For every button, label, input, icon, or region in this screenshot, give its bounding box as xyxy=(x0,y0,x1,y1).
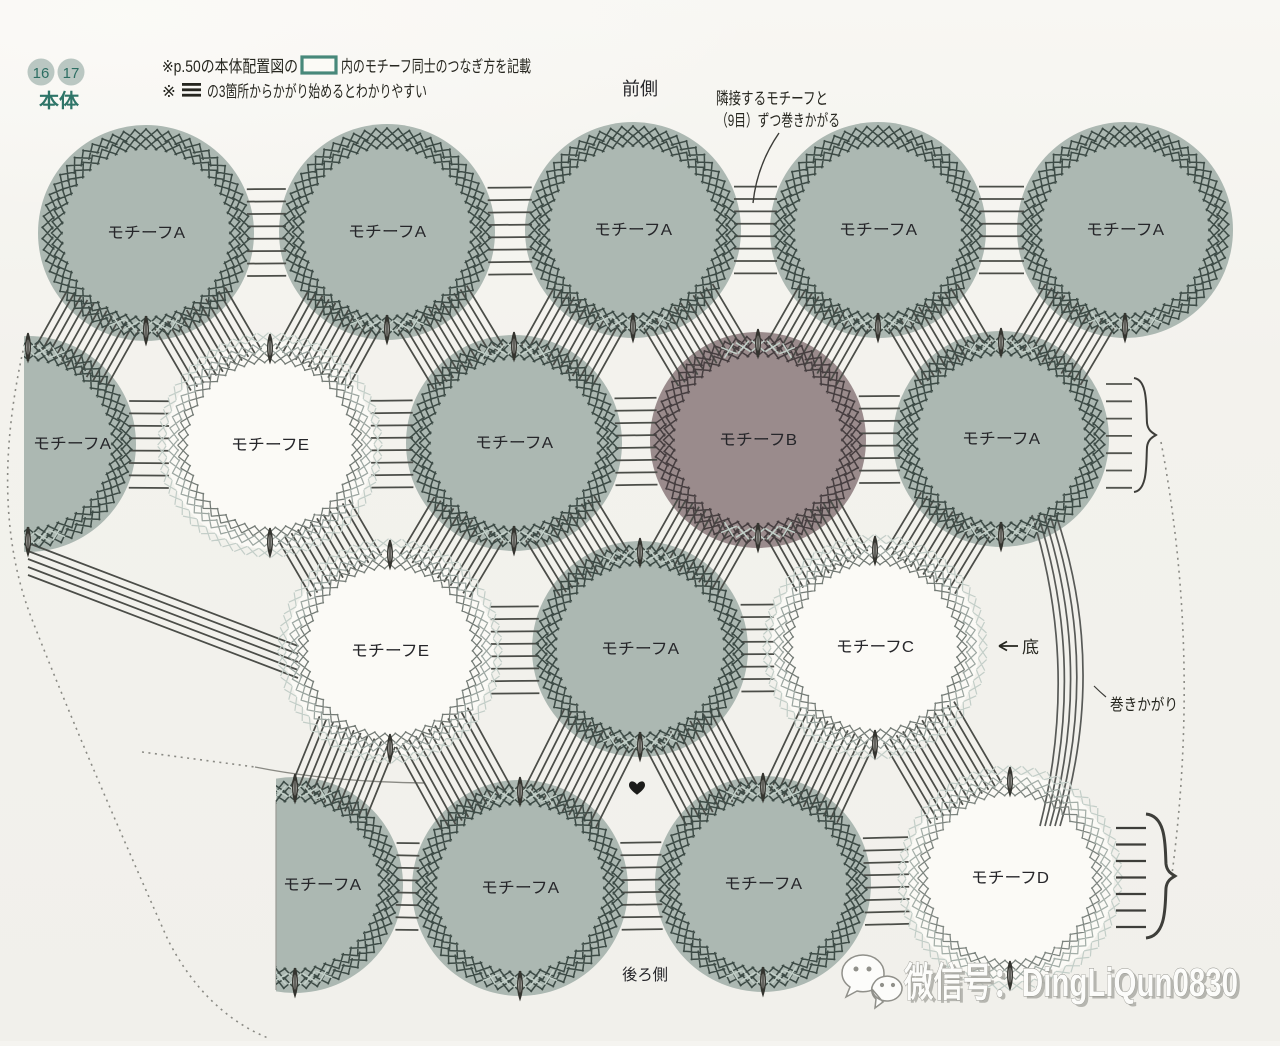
svg-text:モチーフA: モチーフA xyxy=(1086,222,1164,239)
svg-text:モチーフA: モチーフA xyxy=(283,877,361,894)
svg-text:隣接するモチーフと: 隣接するモチーフと xyxy=(716,89,828,108)
svg-text:※p.50の本体配置図の: ※p.50の本体配置図の xyxy=(162,57,298,76)
svg-text:後ろ側: 後ろ側 xyxy=(622,966,668,984)
svg-text:モチーフE: モチーフE xyxy=(351,643,429,660)
svg-text:17: 17 xyxy=(63,65,80,82)
svg-text:モチーフC: モチーフC xyxy=(836,639,914,656)
svg-text:モチーフA: モチーフA xyxy=(348,224,426,241)
svg-text:底: 底 xyxy=(1022,638,1039,657)
svg-text:モチーフA: モチーフA xyxy=(481,880,559,897)
svg-text:16: 16 xyxy=(33,65,50,82)
svg-text:モチーフA: モチーフA xyxy=(601,641,679,658)
svg-text:の3箇所からかがり始めるとわかりやすい: の3箇所からかがり始めるとわかりやすい xyxy=(207,82,427,101)
svg-text:微信号：DingLiQun0830: 微信号：DingLiQun0830 xyxy=(903,961,1238,1005)
svg-text:内のモチーフ同士のつなぎ方を記載: 内のモチーフ同士のつなぎ方を記載 xyxy=(341,57,531,76)
svg-text:前側: 前側 xyxy=(622,79,658,99)
svg-text:本体: 本体 xyxy=(39,89,80,112)
svg-text:（9目）ずつ巻きかがる: （9目）ずつ巻きかがる xyxy=(716,111,840,130)
svg-text:モチーフA: モチーフA xyxy=(962,431,1040,448)
svg-text:巻きかがり: 巻きかがり xyxy=(1110,696,1178,714)
svg-text:モチーフA: モチーフA xyxy=(33,436,111,453)
svg-text:モチーフA: モチーフA xyxy=(107,225,185,242)
svg-text:モチーフD: モチーフD xyxy=(971,870,1049,887)
svg-text:モチーフE: モチーフE xyxy=(231,437,309,454)
svg-text:モチーフA: モチーフA xyxy=(839,222,917,239)
svg-text:モチーフA: モチーフA xyxy=(475,435,553,452)
svg-text:モチーフA: モチーフA xyxy=(594,222,672,239)
svg-text:※: ※ xyxy=(162,83,176,101)
svg-text:モチーフA: モチーフA xyxy=(724,876,802,893)
svg-text:モチーフB: モチーフB xyxy=(719,432,797,449)
